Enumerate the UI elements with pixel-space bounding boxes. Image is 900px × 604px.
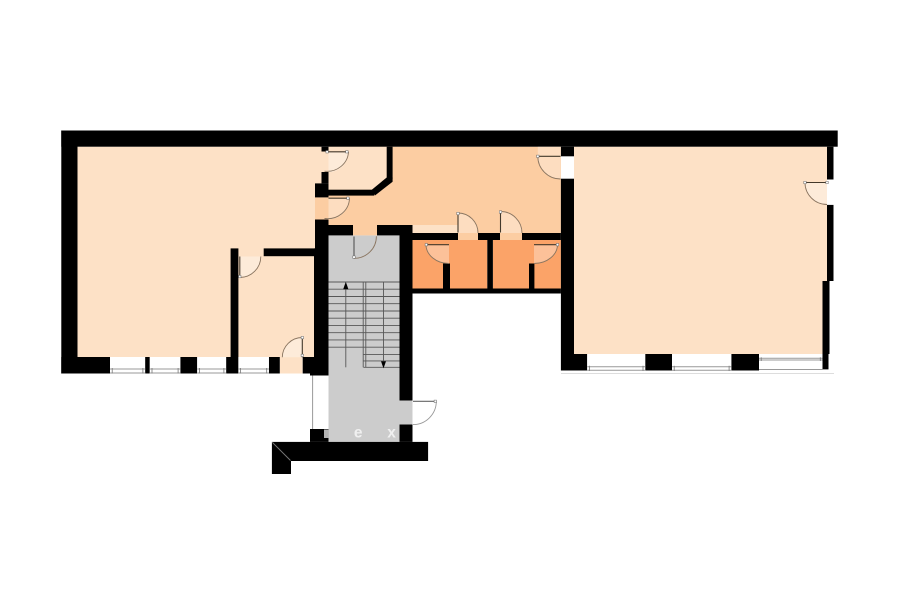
svg-text:x: x — [387, 424, 396, 441]
svg-text:e: e — [354, 424, 363, 441]
